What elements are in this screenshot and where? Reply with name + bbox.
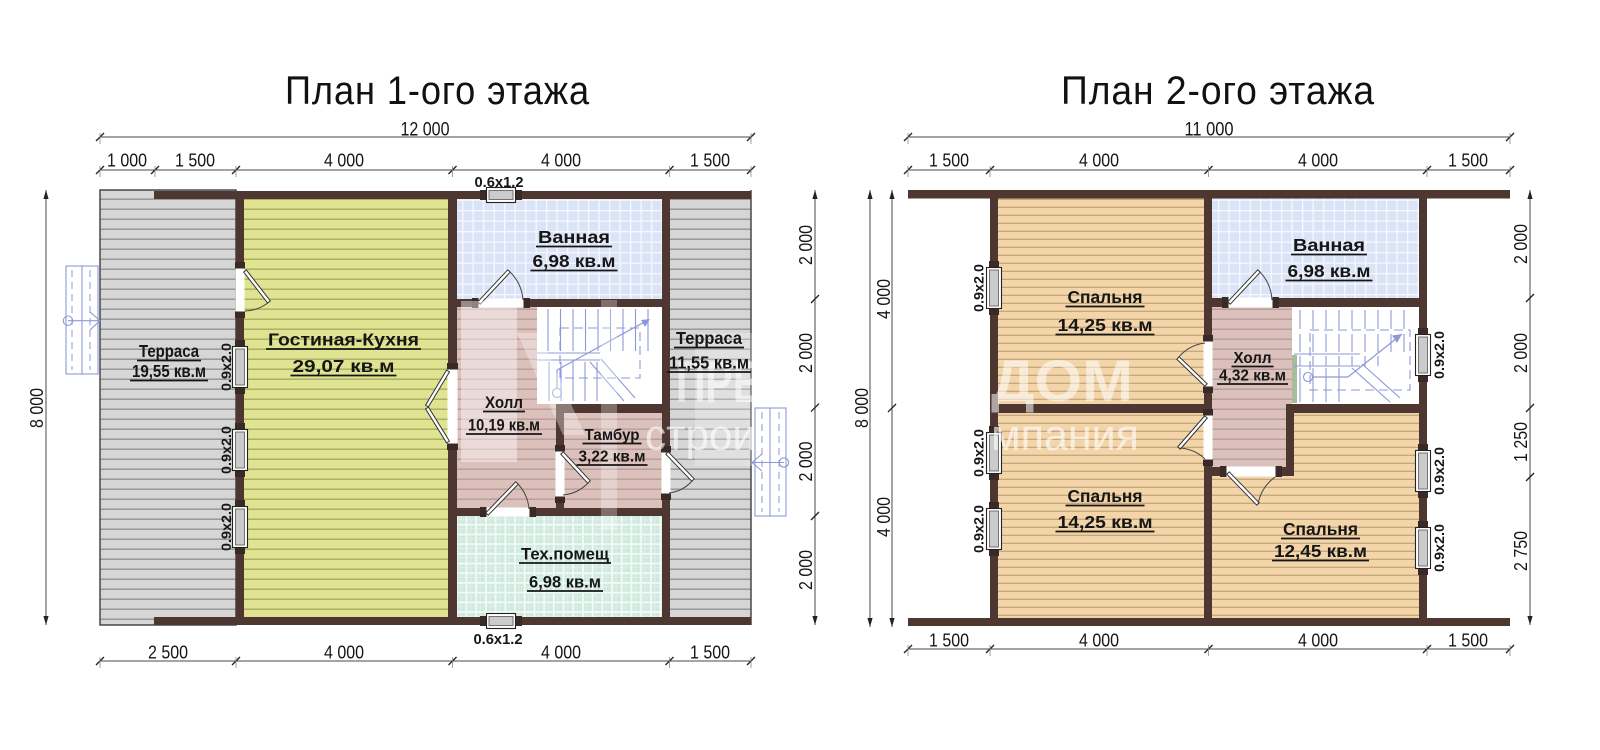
svg-text:2 000: 2 000	[796, 333, 816, 373]
svg-text:14,25 кв.м: 14,25 кв.м	[1058, 315, 1153, 335]
svg-text:3,22 кв.м: 3,22 кв.м	[579, 449, 646, 466]
svg-text:Ванная: Ванная	[1293, 235, 1365, 255]
svg-text:2 000: 2 000	[796, 550, 816, 590]
svg-text:4 000: 4 000	[1298, 151, 1338, 171]
svg-text:Терраса: Терраса	[139, 341, 199, 361]
svg-text:Тех.помещ: Тех.помещ	[521, 545, 610, 564]
svg-text:19,55 кв.м: 19,55 кв.м	[132, 361, 206, 381]
svg-text:8 000: 8 000	[852, 388, 872, 428]
svg-text:12,45 кв.м: 12,45 кв.м	[1274, 541, 1367, 561]
svg-text:0.9х2.0: 0.9х2.0	[1431, 331, 1447, 379]
svg-text:0.9х2.0: 0.9х2.0	[218, 503, 234, 551]
svg-text:1 250: 1 250	[1511, 422, 1531, 462]
svg-text:6,98 кв.м: 6,98 кв.м	[1288, 261, 1371, 281]
svg-text:0.9х2.0: 0.9х2.0	[218, 426, 234, 474]
svg-text:2 000: 2 000	[796, 225, 816, 265]
svg-text:0.9х2.0: 0.9х2.0	[218, 343, 234, 391]
svg-text:10,19 кв.м: 10,19 кв.м	[468, 416, 540, 435]
svg-text:1 500: 1 500	[1448, 631, 1488, 651]
svg-text:11,55 кв.м: 11,55 кв.м	[669, 353, 749, 373]
svg-text:2 000: 2 000	[1511, 333, 1531, 373]
svg-text:0.6х1.2: 0.6х1.2	[475, 174, 524, 191]
svg-text:4 000: 4 000	[874, 279, 894, 319]
svg-text:4 000: 4 000	[324, 643, 364, 663]
svg-text:14,25 кв.м: 14,25 кв.м	[1058, 512, 1153, 532]
svg-text:2 000: 2 000	[796, 442, 816, 482]
svg-text:6,98 кв.м: 6,98 кв.м	[533, 251, 616, 271]
svg-text:1 500: 1 500	[690, 643, 730, 663]
svg-text:4 000: 4 000	[1079, 151, 1119, 171]
svg-text:4,32 кв.м: 4,32 кв.м	[1219, 368, 1286, 385]
svg-text:4 000: 4 000	[324, 151, 364, 171]
svg-text:1 500: 1 500	[929, 631, 969, 651]
svg-text:11 000: 11 000	[1185, 120, 1234, 141]
svg-text:Терраса: Терраса	[676, 328, 742, 348]
svg-text:План 2-ого этажа: План 2-ого этажа	[1061, 69, 1375, 113]
svg-text:Холл: Холл	[1234, 350, 1272, 367]
svg-text:1 500: 1 500	[690, 151, 730, 171]
svg-text:0.6х1.2: 0.6х1.2	[474, 631, 523, 648]
svg-text:0.9х2.0: 0.9х2.0	[1431, 447, 1447, 495]
svg-text:Спальня: Спальня	[1068, 287, 1143, 307]
svg-text:Гостиная-Кухня: Гостиная-Кухня	[268, 330, 419, 350]
svg-text:8 000: 8 000	[27, 388, 47, 428]
svg-text:4 000: 4 000	[874, 497, 894, 537]
svg-text:2 500: 2 500	[148, 643, 188, 663]
svg-text:0.9х2.0: 0.9х2.0	[971, 429, 987, 477]
svg-text:1 500: 1 500	[175, 151, 215, 171]
svg-text:Ванная: Ванная	[538, 227, 610, 247]
svg-text:План 1-ого этажа: План 1-ого этажа	[285, 69, 590, 113]
svg-text:Спальня: Спальня	[1283, 519, 1358, 539]
svg-text:строи: строи	[645, 411, 756, 460]
svg-text:0.9х2.0: 0.9х2.0	[971, 264, 987, 312]
svg-text:4 000: 4 000	[541, 151, 581, 171]
svg-text:1 500: 1 500	[1448, 151, 1488, 171]
svg-text:12 000: 12 000	[401, 120, 450, 141]
svg-text:Спальня: Спальня	[1068, 486, 1143, 506]
svg-text:2 000: 2 000	[1511, 224, 1531, 264]
svg-text:Холл: Холл	[485, 393, 523, 412]
svg-text:1 500: 1 500	[929, 151, 969, 171]
svg-text:мпания: мпания	[991, 411, 1139, 460]
svg-text:4 000: 4 000	[541, 643, 581, 663]
svg-text:4 000: 4 000	[1298, 631, 1338, 651]
svg-text:29,07 кв.м: 29,07 кв.м	[293, 356, 395, 376]
svg-text:ДОМ: ДОМ	[991, 349, 1133, 414]
svg-text:4 000: 4 000	[1079, 631, 1119, 651]
svg-text:0.9х2.0: 0.9х2.0	[1431, 524, 1447, 572]
svg-text:1 000: 1 000	[107, 151, 147, 171]
svg-text:Тамбур: Тамбур	[585, 427, 640, 444]
svg-text:0.9х2.0: 0.9х2.0	[971, 505, 987, 553]
svg-text:2 750: 2 750	[1511, 531, 1531, 571]
svg-text:6,98 кв.м: 6,98 кв.м	[529, 573, 601, 592]
